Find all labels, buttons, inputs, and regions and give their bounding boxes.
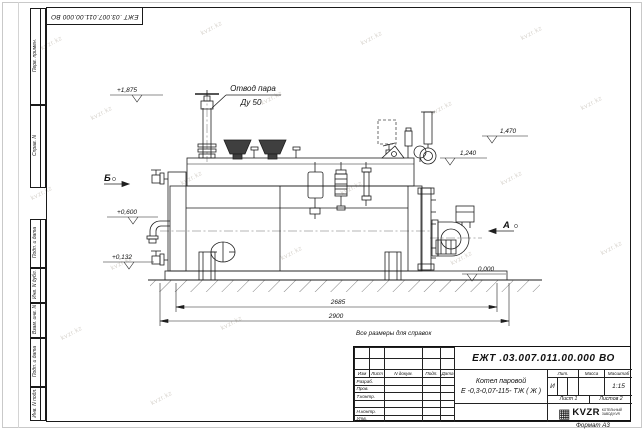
- row-empty: [354, 400, 384, 408]
- elevation-mark-1240: [440, 158, 487, 165]
- change-row-cell: [384, 358, 422, 369]
- elevation-value-0132: +0,132: [112, 254, 132, 261]
- left-elbow-pipe: [147, 221, 170, 243]
- centerlines: [160, 92, 482, 238]
- sig-cell: [384, 377, 422, 385]
- lit-cell: [557, 377, 567, 395]
- lit-cell: [567, 377, 578, 395]
- change-row-cell: [440, 358, 454, 369]
- company-logo: ▦ KVZR КОТЕЛЬНЫЙ ЗАВОД KVR: [547, 403, 632, 422]
- support-foot-left: [199, 252, 215, 280]
- mass-value: [578, 377, 604, 395]
- dimension-value-2685: 2685: [330, 299, 346, 306]
- sig-cell: [440, 415, 454, 423]
- elevation-mark-0600: [107, 217, 158, 224]
- boiler-body: [168, 172, 422, 271]
- product-code: Е -0,3-0,07-115- ТЖ ( Ж ): [461, 388, 541, 396]
- sig-cell: [422, 377, 440, 385]
- elevation-value-1240: 1,240: [460, 150, 477, 157]
- logo-subtext-2: ЗАВОД KVR: [602, 413, 622, 417]
- sig-cell: [422, 415, 440, 423]
- title-block-doc-number: ЕЖТ .03.007.011.00.000 ВО: [454, 347, 632, 369]
- lit-header: Лит.: [547, 369, 578, 377]
- sheets-total: Листов 2: [589, 395, 632, 403]
- steam-outlet-size: Ду 50: [240, 98, 262, 107]
- gauge-glass-tube: [362, 162, 371, 206]
- ground-line: [148, 280, 542, 292]
- change-row-cell: [354, 347, 369, 358]
- change-row-cell: [354, 358, 369, 369]
- sheet-number: Лист 1: [547, 395, 589, 403]
- scale-value: 1:15: [604, 377, 632, 395]
- col-header-list: Лист: [369, 369, 384, 377]
- sensor-cylinder: [405, 131, 412, 146]
- drawing-sheet: kvzr.kz kvzr.kz kvzr.kz kvzr.kz kvzr.kz …: [0, 0, 644, 430]
- kvzr-logo-icon: ▦: [558, 407, 570, 420]
- elevation-mark-0132: [103, 262, 154, 269]
- sig-cell: [384, 407, 422, 415]
- top-right-fittings: [378, 120, 426, 162]
- elevation-value-0000: 0,000: [478, 266, 495, 273]
- title-block: Изм Лист N докум. Подп. Дата Разраб. Про…: [353, 346, 631, 421]
- water-level-gauge: [308, 162, 323, 219]
- dimension-value-2900: 2900: [328, 313, 344, 320]
- col-header-doc: N докум.: [384, 369, 422, 377]
- flange-ring: [420, 148, 436, 164]
- scale-header: Масштаб: [604, 369, 632, 377]
- sig-cell: [440, 400, 454, 408]
- sig-cell: [384, 400, 422, 408]
- kvzr-logo-text: KVZR: [572, 408, 599, 418]
- rear-flange: [418, 188, 436, 270]
- product-name: Котел паровой: [476, 378, 526, 386]
- sig-cell: [440, 385, 454, 393]
- top-hoppers: [224, 140, 286, 159]
- elevation-value-1470: 1,470: [500, 128, 517, 135]
- reference-note: Все размеры для справок: [356, 330, 431, 337]
- elevation-mark-1875: [110, 95, 163, 102]
- row-razrab: Разраб.: [354, 377, 384, 385]
- steam-outlet-label: Отвод пара: [230, 84, 276, 93]
- burner-assembly: [432, 206, 474, 256]
- boiler-top-casing: [187, 147, 414, 186]
- change-row-cell: [422, 347, 440, 358]
- support-foot-right: [385, 252, 401, 280]
- row-nkontr: Н.контр.: [354, 407, 384, 415]
- sig-cell: [384, 385, 422, 393]
- view-label-a: А: [502, 220, 510, 231]
- sig-cell: [440, 407, 454, 415]
- col-header-izm: Изм: [354, 369, 369, 377]
- change-row-cell: [384, 347, 422, 358]
- burner-air-box: [456, 206, 474, 222]
- sig-cell: [422, 385, 440, 393]
- format-note: Формат А3: [576, 422, 610, 429]
- change-row-cell: [369, 358, 384, 369]
- elevation-value-1875: +1,875: [117, 87, 137, 94]
- left-drain-valve: [151, 251, 168, 265]
- manhole: [211, 242, 235, 262]
- change-row-cell: [422, 358, 440, 369]
- row-prov: Пров.: [354, 385, 384, 393]
- sig-cell: [440, 392, 454, 400]
- change-row-cell: [440, 347, 454, 358]
- col-header-data: Дата: [440, 369, 454, 377]
- sig-cell: [422, 407, 440, 415]
- col-header-podp: Подп.: [422, 369, 440, 377]
- lit-value: И: [547, 377, 557, 395]
- change-row-cell: [369, 347, 384, 358]
- row-tkontr: Т.контр.: [354, 392, 384, 400]
- sig-cell: [384, 415, 422, 423]
- sig-cell: [440, 377, 454, 385]
- rear-stack-pipe: [420, 112, 436, 164]
- row-utv: Утв.: [354, 415, 384, 423]
- mass-header: Масса: [578, 369, 604, 377]
- elevation-value-0600: +0,600: [117, 209, 137, 216]
- ground-hatch: [150, 280, 540, 292]
- phantom-outline: [378, 120, 396, 144]
- view-label-b: Б: [104, 173, 111, 184]
- bottom-left-cell: [454, 403, 547, 422]
- base-frame: [165, 271, 507, 280]
- left-top-valve: [151, 170, 168, 184]
- sig-cell: [422, 392, 440, 400]
- sig-cell: [422, 400, 440, 408]
- sig-cell: [384, 392, 422, 400]
- elevation-mark-1470: [482, 136, 528, 143]
